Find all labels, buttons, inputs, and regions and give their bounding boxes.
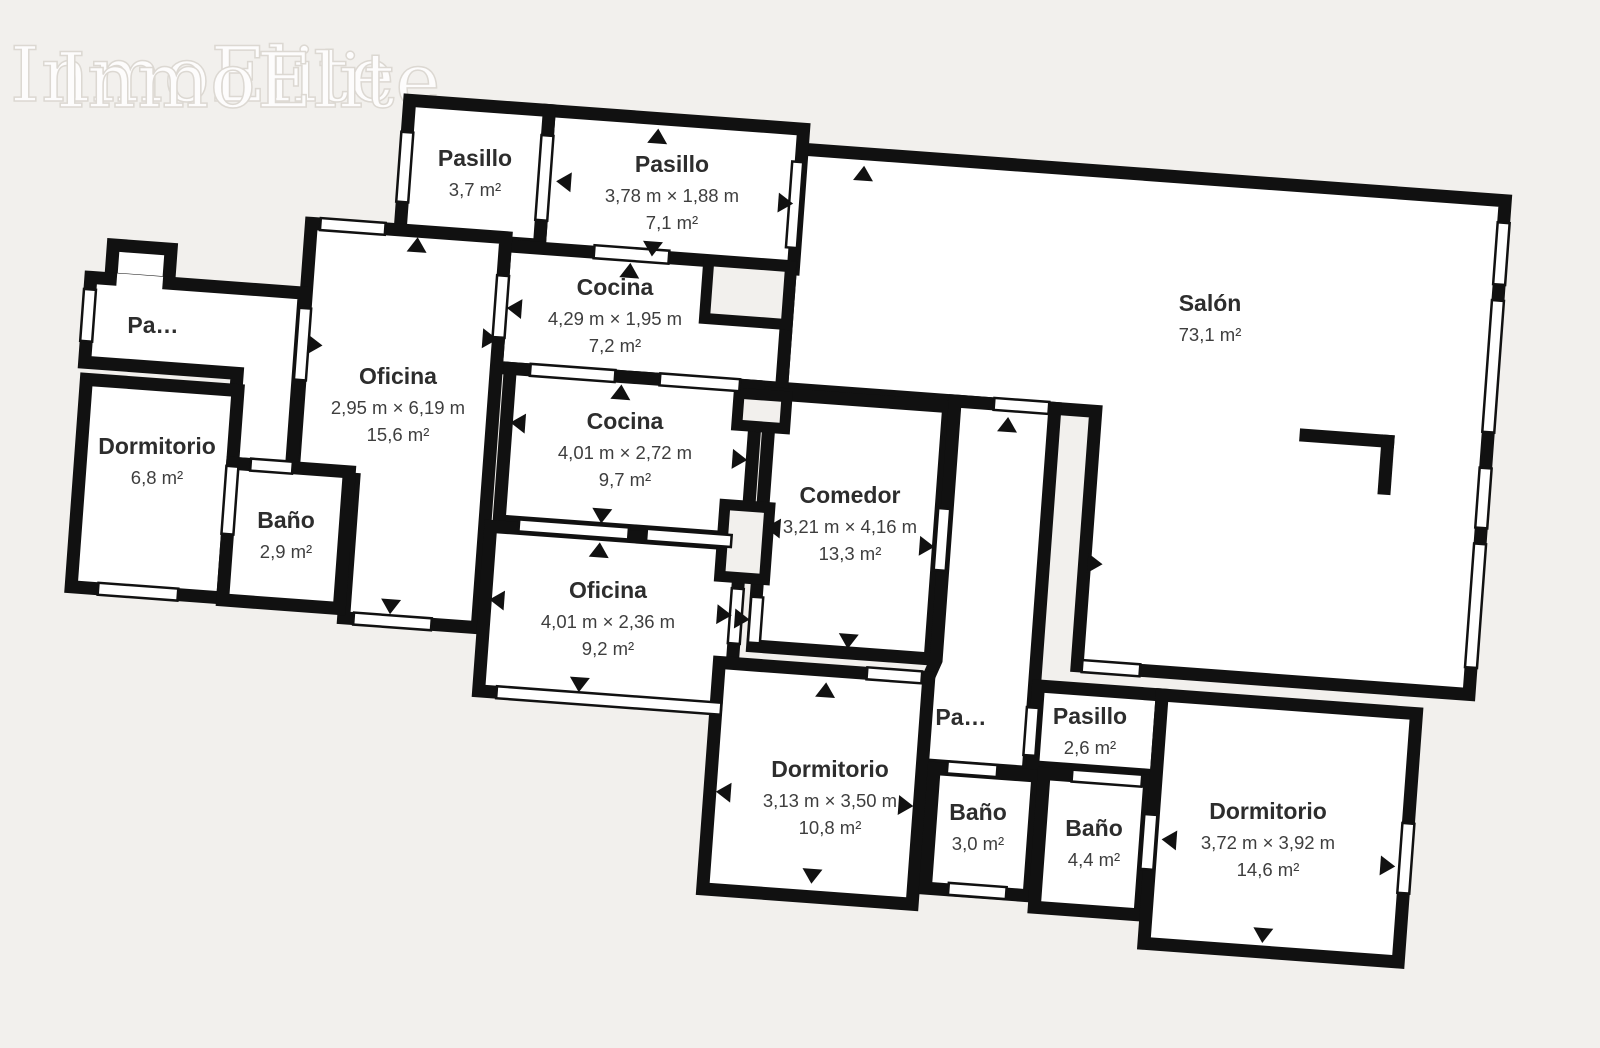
door-opening [250,459,293,474]
door-opening [748,597,763,644]
floor-plan-page: InmoElite InmoElite [0,0,1600,1048]
room-name: Pa… [935,704,986,730]
room-label-pasillo-flare: Pa… [935,704,986,730]
room-name: Pasillo [438,145,512,171]
room-area: 14,6 m² [1237,859,1300,880]
room-area: 9,2 m² [582,638,634,659]
room-dims: 3,78 m × 1,88 m [605,185,739,206]
room-area: 7,2 m² [589,335,641,356]
room-name: Cocina [587,408,664,434]
window [1082,660,1141,676]
room-area: 2,9 m² [260,541,312,562]
door-opening [1140,814,1157,870]
door-opening [994,398,1050,414]
window [80,289,96,342]
door-opening [1023,707,1038,756]
room-name: Dormitorio [1209,798,1327,824]
room-name: Comedor [800,482,901,508]
room-name: Pasillo [635,151,709,177]
room-dims: 3,21 m × 4,16 m [783,516,917,537]
door-opening [867,667,923,683]
room-area: 6,8 m² [131,467,183,488]
room-label-pasillo-entry: Pa… [127,312,178,338]
room-shape-bano-left [223,463,350,608]
room-area: 73,1 m² [1179,324,1242,345]
room-name: Pa… [127,312,178,338]
room-shape-pasillo-bottom [1033,686,1163,776]
door-opening [947,761,998,777]
shaft-comedor-top [737,393,787,428]
window [948,883,1007,899]
room-shape-bano-right [1034,774,1150,915]
room-shape-dormitorio-left [71,379,238,598]
room-name: Dormitorio [771,756,889,782]
floor-plan-svg: Pasillo 3,7 m² Pasillo 3,78 m × 1,88 m 7… [0,0,1600,1048]
room-name: Dormitorio [98,433,216,459]
room-dims: 4,29 m × 1,95 m [548,308,682,329]
room-name: Baño [949,799,1007,825]
room-area: 3,7 m² [449,179,501,200]
room-name: Baño [257,507,315,533]
room-dims: 4,01 m × 2,36 m [541,611,675,632]
room-area: 10,8 m² [799,817,862,838]
room-dims: 4,01 m × 2,72 m [558,442,692,463]
room-area: 4,4 m² [1068,849,1120,870]
shaft-cocina-top [705,261,791,325]
room-dims: 2,95 m × 6,19 m [331,397,465,418]
room-dims: 3,72 m × 3,92 m [1201,832,1335,853]
room-area: 3,0 m² [952,833,1004,854]
room-area: 13,3 m² [819,543,882,564]
room-name: Pasillo [1053,703,1127,729]
room-shape-pasillo-top-left [400,100,550,245]
room-name: Baño [1065,815,1123,841]
room-area: 15,6 m² [367,424,430,445]
room-area: 9,7 m² [599,469,651,490]
room-name: Salón [1179,290,1242,316]
room-shape-dormitorio-right [1144,695,1417,962]
room-name: Oficina [359,363,437,389]
room-area: 2,6 m² [1064,737,1116,758]
room-area: 7,1 m² [646,212,698,233]
room-name: Oficina [569,577,647,603]
room-name: Cocina [577,274,654,300]
room-dims: 3,13 m × 3,50 m [763,790,897,811]
room-shape-dormitorio-mid [703,662,929,904]
